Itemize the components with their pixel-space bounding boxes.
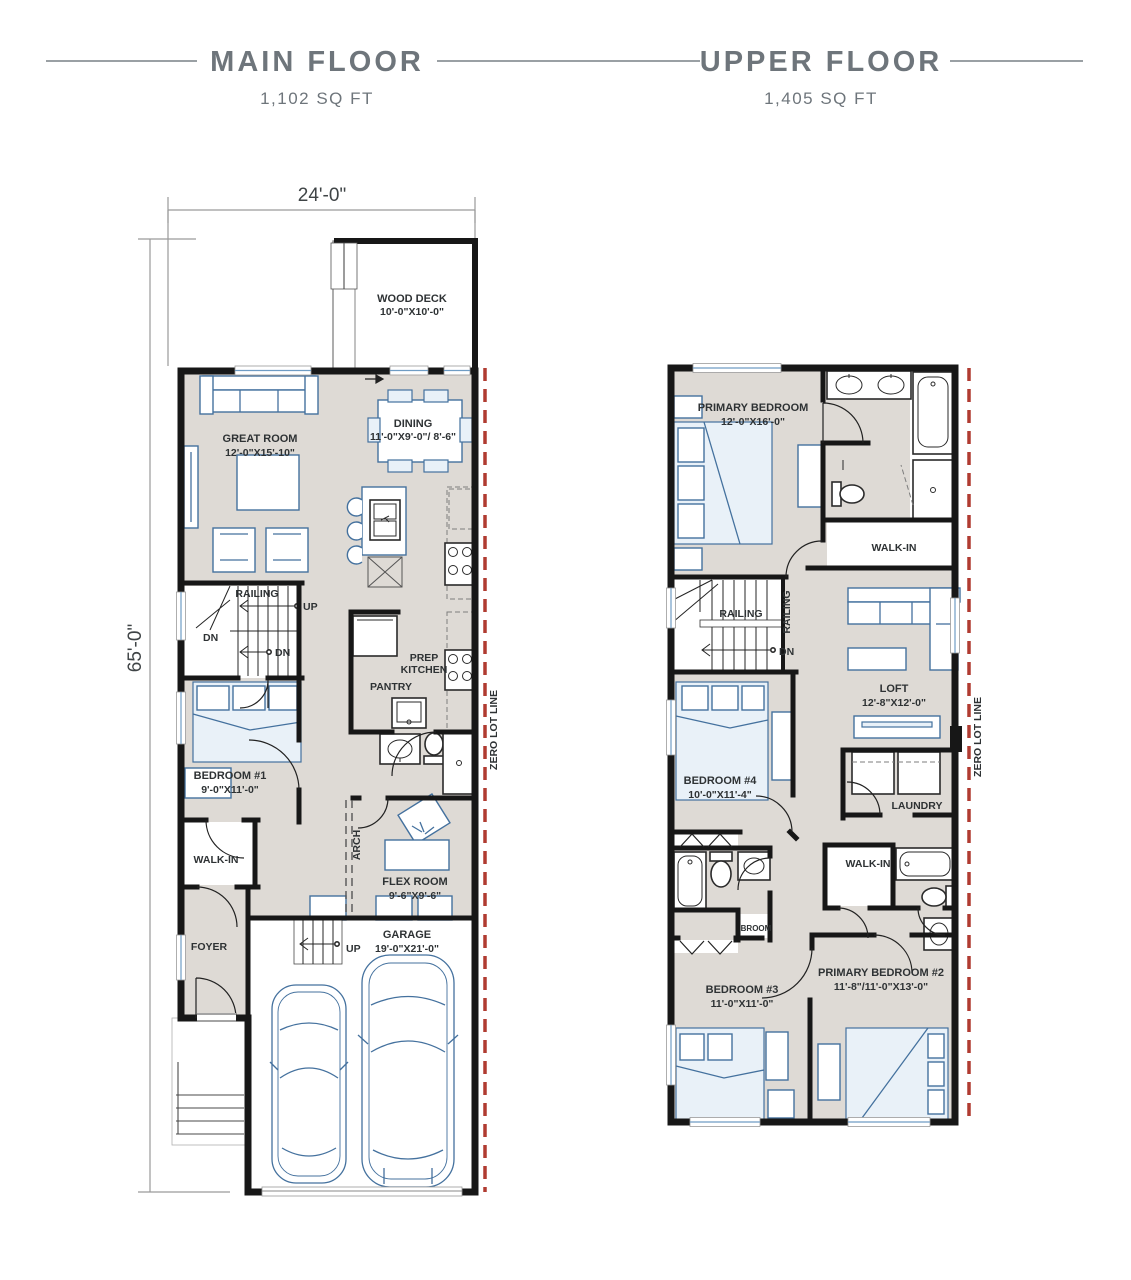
- coffee-table: [237, 455, 299, 510]
- railing2-label: RAILING: [781, 590, 793, 633]
- prep-kitchen-label1: PREP: [410, 652, 439, 664]
- upper-floor-plan: ZERO LOT LINE PRIMARY BEDROOM 12'-0"X16'…: [667, 364, 985, 1127]
- bench: [798, 445, 822, 507]
- walkin2-label: WALK-IN: [846, 858, 891, 870]
- upper-floor-title: UPPER FLOOR: [700, 46, 942, 78]
- bedroom3-furniture: [676, 1028, 794, 1120]
- garage-up-label: UP: [346, 943, 361, 955]
- range-stove: [445, 543, 475, 585]
- flex-room-dims: 9'-6"X9'-6": [389, 890, 441, 902]
- garage-dims: 19'-0"X21'-0": [375, 943, 439, 955]
- foyer-label: FOYER: [191, 941, 228, 953]
- page-header: MAIN FLOOR 1,102 SQ FT UPPER FLOOR 1,405…: [46, 46, 1083, 108]
- railing-label: RAILING: [235, 588, 278, 600]
- primary-bedroom2-dims: 11'-8"/11'-0"X13'-0": [834, 981, 928, 993]
- armchair-1: [213, 528, 255, 572]
- dn-label: DN: [203, 632, 218, 644]
- prep-stove: [445, 650, 475, 690]
- stool-3: [347, 546, 362, 564]
- bedroom1-label: BEDROOM #1: [194, 770, 267, 782]
- bed: [846, 1028, 948, 1120]
- garage-stairs: [294, 920, 342, 964]
- bath-vanity-sink: [380, 734, 420, 764]
- sofa: [200, 376, 318, 414]
- dresser: [772, 712, 792, 780]
- dining-label: DINING: [394, 418, 433, 430]
- upper-zero-lot-label: ZERO LOT LINE: [972, 697, 984, 777]
- main-floor-sqft: 1,102 SQ FT: [260, 89, 374, 108]
- prep-kitchen-label2: KITCHEN: [401, 664, 448, 676]
- bedroom3-dims: 11'-0"X11'-0": [711, 998, 774, 1010]
- bathtub: [913, 372, 953, 454]
- floorplan-page: MAIN FLOOR 1,102 SQ FT UPPER FLOOR 1,405…: [0, 0, 1131, 1280]
- vanity-sink: [738, 852, 770, 880]
- media-unit: [184, 446, 198, 528]
- bathtub: [674, 852, 706, 910]
- desk: [766, 1032, 788, 1080]
- bed: [676, 1028, 764, 1120]
- floorplan-canvas: MAIN FLOOR 1,102 SQ FT UPPER FLOOR 1,405…: [0, 0, 1131, 1280]
- shower: [443, 732, 475, 794]
- primary-bedroom2-label: PRIMARY BEDROOM #2: [818, 967, 944, 979]
- railing-label: RAILING: [719, 608, 762, 620]
- arch-label: ARCH: [351, 830, 363, 860]
- bedroom4-dims: 10'-0"X11'-4": [688, 789, 751, 801]
- main-zero-lot-label: ZERO LOT LINE: [488, 690, 500, 770]
- tv-console: [854, 716, 940, 738]
- pantry-fridge: [353, 616, 397, 656]
- front-porch: [172, 1018, 248, 1145]
- upper-floor-sqft: 1,405 SQ FT: [764, 89, 878, 108]
- laundry-label: LAUNDRY: [892, 800, 943, 812]
- island-sink: [370, 500, 400, 540]
- nightstand: [674, 548, 702, 570]
- height-dimension: 65'-0": [125, 624, 146, 672]
- ottoman: [848, 648, 906, 670]
- main-floor-title: MAIN FLOOR: [210, 46, 424, 78]
- bed: [193, 682, 301, 762]
- armchair-2: [266, 528, 308, 572]
- stool-1: [347, 498, 362, 516]
- great-room-dims: 12'-0"X15'-10": [225, 447, 295, 459]
- up-label: UP: [303, 601, 318, 613]
- wood-deck-label: WOOD DECK: [377, 293, 447, 305]
- bedroom4-label: BEDROOM #4: [684, 775, 758, 787]
- primary-bedroom-label: PRIMARY BEDROOM: [698, 402, 809, 414]
- width-dimension: 24'-0": [298, 185, 346, 206]
- pantry-label: PANTRY: [370, 681, 412, 693]
- dn-label: DN: [779, 646, 794, 658]
- primary-bed: [674, 422, 772, 544]
- dn2-label: DN: [275, 647, 290, 659]
- main-floor-plan: WOOD DECK 10'-0"X10'-0": [172, 241, 500, 1196]
- pantry-sink: [392, 698, 426, 728]
- dining-dims: 11'-0"X9'-0"/ 8'-6": [370, 431, 456, 443]
- walkin1-label: WALK-IN: [872, 542, 917, 554]
- toilet: [922, 886, 955, 908]
- wood-deck-dims: 10'-0"X10'-0": [380, 306, 444, 318]
- loft-label: LOFT: [880, 683, 909, 695]
- bedroom3-label: BEDROOM #3: [706, 984, 779, 996]
- bedroom1-dims: 9'-0"X11'-0": [201, 784, 259, 796]
- garage-label: GARAGE: [383, 929, 431, 941]
- toilet: [710, 852, 732, 887]
- great-room-label: GREAT ROOM: [223, 433, 298, 445]
- bathtub: [896, 848, 954, 880]
- toilet: [424, 733, 444, 764]
- flex-room-label: FLEX ROOM: [382, 876, 447, 888]
- primary-bedroom-dims: 12'-0"X16'-0": [721, 416, 785, 428]
- loft-dims: 12'-8"X12'-0": [862, 697, 926, 709]
- nightstand: [768, 1090, 794, 1118]
- double-vanity: [827, 371, 911, 399]
- wood-deck: WOOD DECK 10'-0"X10'-0": [331, 241, 475, 371]
- flex-desk: [385, 840, 449, 870]
- stool-2: [347, 522, 362, 540]
- walkin-label: WALK-IN: [194, 854, 239, 866]
- bench: [818, 1044, 840, 1100]
- broom-label: BROOM: [741, 924, 772, 933]
